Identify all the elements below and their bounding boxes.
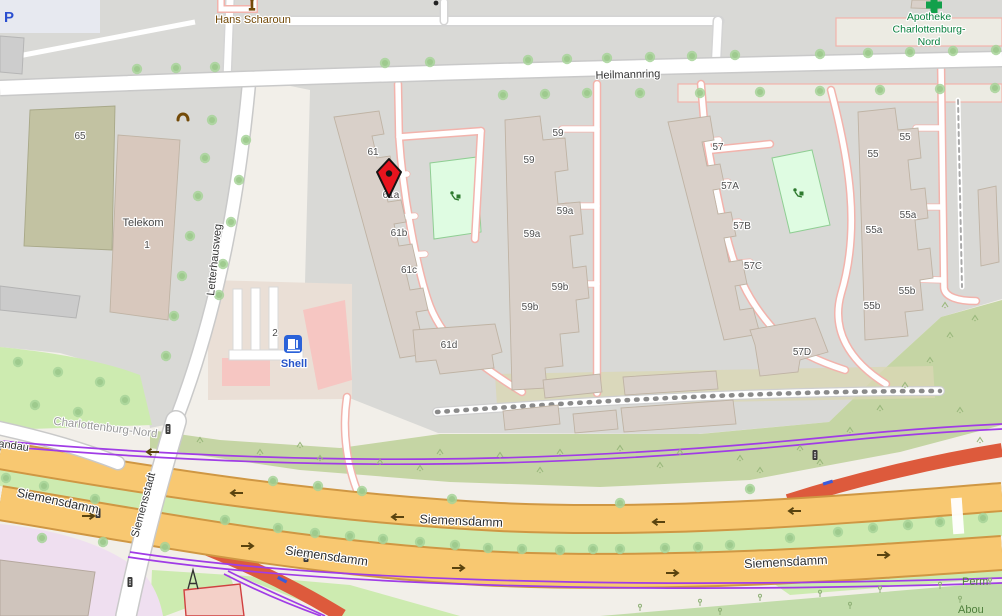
tree-icon (200, 153, 210, 163)
tree-icon (483, 543, 493, 553)
tree-icon (540, 89, 550, 99)
heilmannring-label: Heilmannring (595, 68, 660, 82)
housenumber: 59 (552, 128, 564, 139)
tree-icon (268, 476, 278, 486)
housenumber: 55a (900, 210, 917, 221)
tree-icon (948, 46, 958, 56)
tree-icon (132, 64, 142, 74)
tree-icon (161, 351, 171, 361)
parking-lane (251, 288, 260, 350)
tree-icon (863, 48, 873, 58)
tree-icon (450, 540, 460, 550)
tree-icon (193, 191, 203, 201)
tree-icon (177, 271, 187, 281)
tree-icon (53, 367, 63, 377)
pharmacy-label-2[interactable]: Charlottenburg- (893, 24, 966, 36)
tree-icon (169, 311, 179, 321)
parking-label: P (4, 9, 14, 26)
tree-icon (210, 62, 220, 72)
building-nw (0, 36, 24, 74)
telekom-label[interactable]: Telekom (123, 217, 164, 229)
building-s (184, 584, 244, 616)
tree-icon (815, 86, 825, 96)
map-svg[interactable]: P Hans Scharoun Apotheke Charlottenburg-… (0, 0, 1002, 616)
tree-icon (635, 88, 645, 98)
map-canvas[interactable]: P Hans Scharoun Apotheke Charlottenburg-… (0, 0, 1002, 616)
housenumber: 55 (867, 149, 879, 160)
tree-icon (98, 537, 108, 547)
parking-strip-e (678, 84, 1002, 102)
tree-icon (555, 545, 565, 555)
housenumber: 55 (899, 132, 911, 143)
tree-icon (755, 87, 765, 97)
pharmacy-label-1[interactable]: Apotheke (907, 11, 952, 23)
tree-icon (833, 527, 843, 537)
building-65 (24, 106, 115, 250)
tree-icon (1, 473, 11, 483)
tree-icon (425, 57, 435, 67)
traffic-light-icon (128, 577, 133, 587)
tree-icon (785, 533, 795, 543)
tree-icon (615, 544, 625, 554)
tree-icon (562, 54, 572, 64)
housenumber: 61d (441, 340, 458, 351)
housenumber: 61 (367, 147, 379, 158)
tree-icon (273, 523, 283, 533)
housenumber: 59b (522, 302, 539, 313)
tree-icon (171, 63, 181, 73)
tree-icon (37, 533, 47, 543)
tree-icon (615, 498, 625, 508)
housenumber: 55a (866, 225, 883, 236)
tree-icon (95, 377, 105, 387)
tree-icon (645, 52, 655, 62)
housenumber: 55b (899, 286, 916, 297)
fuel-pump-icon[interactable] (284, 335, 302, 353)
tree-icon (357, 486, 367, 496)
tree-icon (588, 544, 598, 554)
tree-icon (378, 534, 388, 544)
building-east (978, 186, 999, 266)
tree-icon (30, 400, 40, 410)
tree-icon (345, 531, 355, 541)
tree-icon (160, 542, 170, 552)
parking-lane (269, 287, 278, 349)
tree-icon (120, 395, 130, 405)
tree-icon (875, 85, 885, 95)
tree-icon (602, 53, 612, 63)
parking-lane (233, 289, 242, 351)
tree-icon (13, 357, 23, 367)
tree-icon (226, 217, 236, 227)
parking-area (0, 0, 100, 33)
housenumber: 61c (401, 265, 417, 276)
housenumber: 61b (391, 228, 408, 239)
housenumber: 59a (557, 206, 574, 217)
memorial-label[interactable]: Hans Scharoun (215, 14, 291, 26)
housenumber: 57B (733, 221, 751, 232)
tree-icon (185, 231, 195, 241)
fuel-station-label[interactable]: Shell (281, 358, 307, 370)
tree-icon (905, 47, 915, 57)
tree-icon (695, 88, 705, 98)
tree-icon (207, 115, 217, 125)
tree-icon (582, 88, 592, 98)
housenumber: 65 (74, 131, 86, 142)
tree-icon (415, 537, 425, 547)
housenumber: 59b (552, 282, 569, 293)
allotment-label-2: Abou (958, 604, 984, 616)
tree-icon (935, 84, 945, 94)
housenumber: 59a (524, 229, 541, 240)
traffic-light-icon (166, 424, 171, 434)
tree-icon (730, 50, 740, 60)
housenumber: 2 (272, 328, 278, 339)
tree-icon (693, 542, 703, 552)
tree-icon (868, 523, 878, 533)
tree-icon (990, 83, 1000, 93)
tree-icon (241, 135, 251, 145)
housenumber: 57D (793, 347, 811, 358)
tree-icon (447, 494, 457, 504)
tree-icon (725, 540, 735, 550)
garage-row (573, 410, 618, 433)
housenumber: 59 (523, 155, 535, 166)
traffic-light-icon (813, 450, 818, 460)
tree-icon (687, 51, 697, 61)
tree-icon (234, 175, 244, 185)
tree-icon (313, 481, 323, 491)
tree-icon (935, 517, 945, 527)
tree-icon (73, 407, 83, 417)
tree-icon (523, 55, 533, 65)
tree-icon (517, 544, 527, 554)
tree-icon (745, 484, 755, 494)
fuel-canopy-2 (222, 358, 270, 386)
tree-icon (660, 543, 670, 553)
tree-icon (978, 513, 988, 523)
tree-icon (903, 520, 913, 530)
tree-icon (310, 528, 320, 538)
housenumber: 57 (712, 142, 724, 153)
tree-icon (498, 90, 508, 100)
housenumber: 55b (864, 301, 881, 312)
tree-icon (815, 49, 825, 59)
pharmacy-label-3[interactable]: Nord (918, 36, 941, 48)
allotment-label-1: Perm (962, 576, 988, 588)
bollard-dot-icon (434, 1, 439, 6)
housenumber: 1 (144, 240, 150, 251)
tree-icon (991, 45, 1001, 55)
housenumber: 57C (744, 261, 762, 272)
housenumber: 57A (721, 181, 739, 192)
tree-icon (220, 515, 230, 525)
tree-icon (380, 58, 390, 68)
